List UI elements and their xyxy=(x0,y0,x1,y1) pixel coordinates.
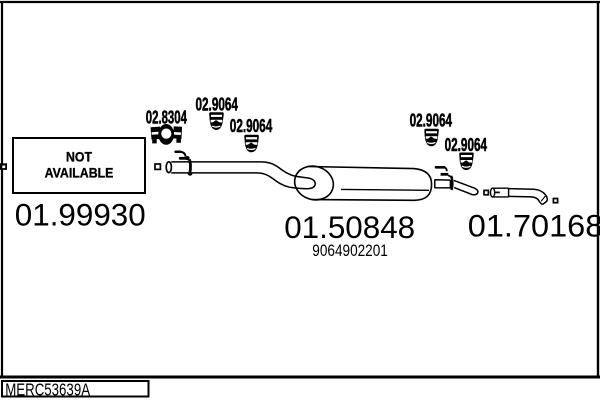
svg-text:9064902201: 9064902201 xyxy=(312,241,388,260)
svg-text:02.9064: 02.9064 xyxy=(230,117,273,137)
svg-text:01.50848: 01.50848 xyxy=(284,210,415,245)
svg-text:01.70168: 01.70168 xyxy=(468,208,600,243)
svg-text:02.9064: 02.9064 xyxy=(196,95,239,115)
svg-text:01.99930: 01.99930 xyxy=(15,198,146,233)
svg-text:NOT: NOT xyxy=(66,148,92,164)
svg-text:02.9064: 02.9064 xyxy=(410,111,453,131)
svg-text:MERC53639A: MERC53639A xyxy=(5,381,90,400)
svg-text:AVAILABLE: AVAILABLE xyxy=(45,165,114,181)
